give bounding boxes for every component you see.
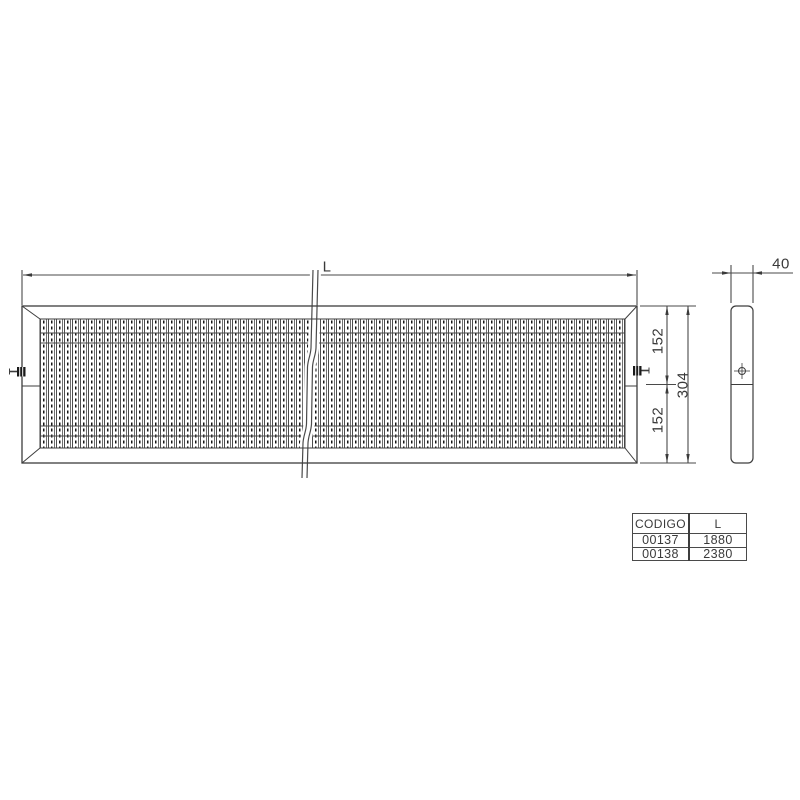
panel-inner-frame: [40, 319, 625, 448]
codigo-value: 00138: [633, 547, 690, 561]
chamfer-line: [22, 306, 40, 319]
chamfer-line: [625, 306, 637, 319]
dimension-height-top-label: 152: [650, 328, 667, 355]
spec-table-header-length: L: [689, 514, 747, 534]
arrowhead-icon: [665, 385, 668, 394]
dimension-height-total-label: 304: [675, 372, 692, 399]
panel-outer-frame: [22, 306, 637, 463]
screw-head: [17, 367, 26, 377]
dimension-height-bottom-label: 152: [650, 407, 667, 434]
dimension-length-label: L: [323, 259, 332, 276]
codigo-value: 00137: [633, 534, 690, 548]
break-lines: [302, 270, 318, 478]
drawing-linework: L 152 304 152: [0, 0, 800, 800]
length-value: 2380: [689, 547, 747, 561]
mesh-joint-lines: [40, 333, 625, 436]
arrowhead-icon: [753, 271, 762, 274]
side-view: [731, 306, 753, 463]
arrowhead-icon: [686, 306, 689, 315]
arrowhead-icon: [686, 454, 689, 463]
spec-table-row: 00137 1880: [633, 534, 747, 548]
arrowhead-icon: [722, 271, 731, 274]
chamfer-line: [625, 448, 637, 463]
front-view-frame: [22, 306, 637, 463]
left-screw-icon: [9, 367, 26, 377]
arrowhead-icon: [665, 454, 668, 463]
screw-crosshair-icon: [734, 363, 750, 379]
screw-head: [633, 366, 642, 376]
arrowhead-icon: [665, 306, 668, 315]
spec-table: CODIGO L 00137 1880 00138 2380: [632, 513, 747, 561]
break-halo: [305, 270, 316, 478]
dimension-heights: 152 304 152: [640, 306, 696, 463]
length-value: 1880: [689, 534, 747, 548]
arrowhead-icon: [665, 376, 668, 385]
dimension-length: L: [22, 259, 637, 306]
spec-table-header-row: CODIGO L: [633, 514, 747, 534]
arrowhead-icon: [23, 273, 32, 276]
spec-table-header-codigo: CODIGO: [633, 514, 690, 534]
arrowhead-icon: [627, 273, 636, 276]
right-screw-icon: [633, 366, 650, 376]
dimension-depth-label: 40: [772, 256, 790, 273]
chamfer-line: [22, 448, 40, 463]
dimension-depth: 40: [712, 256, 793, 304]
spec-table-row: 00138 2380: [633, 547, 747, 561]
technical-drawing-page: L 152 304 152: [0, 0, 800, 800]
